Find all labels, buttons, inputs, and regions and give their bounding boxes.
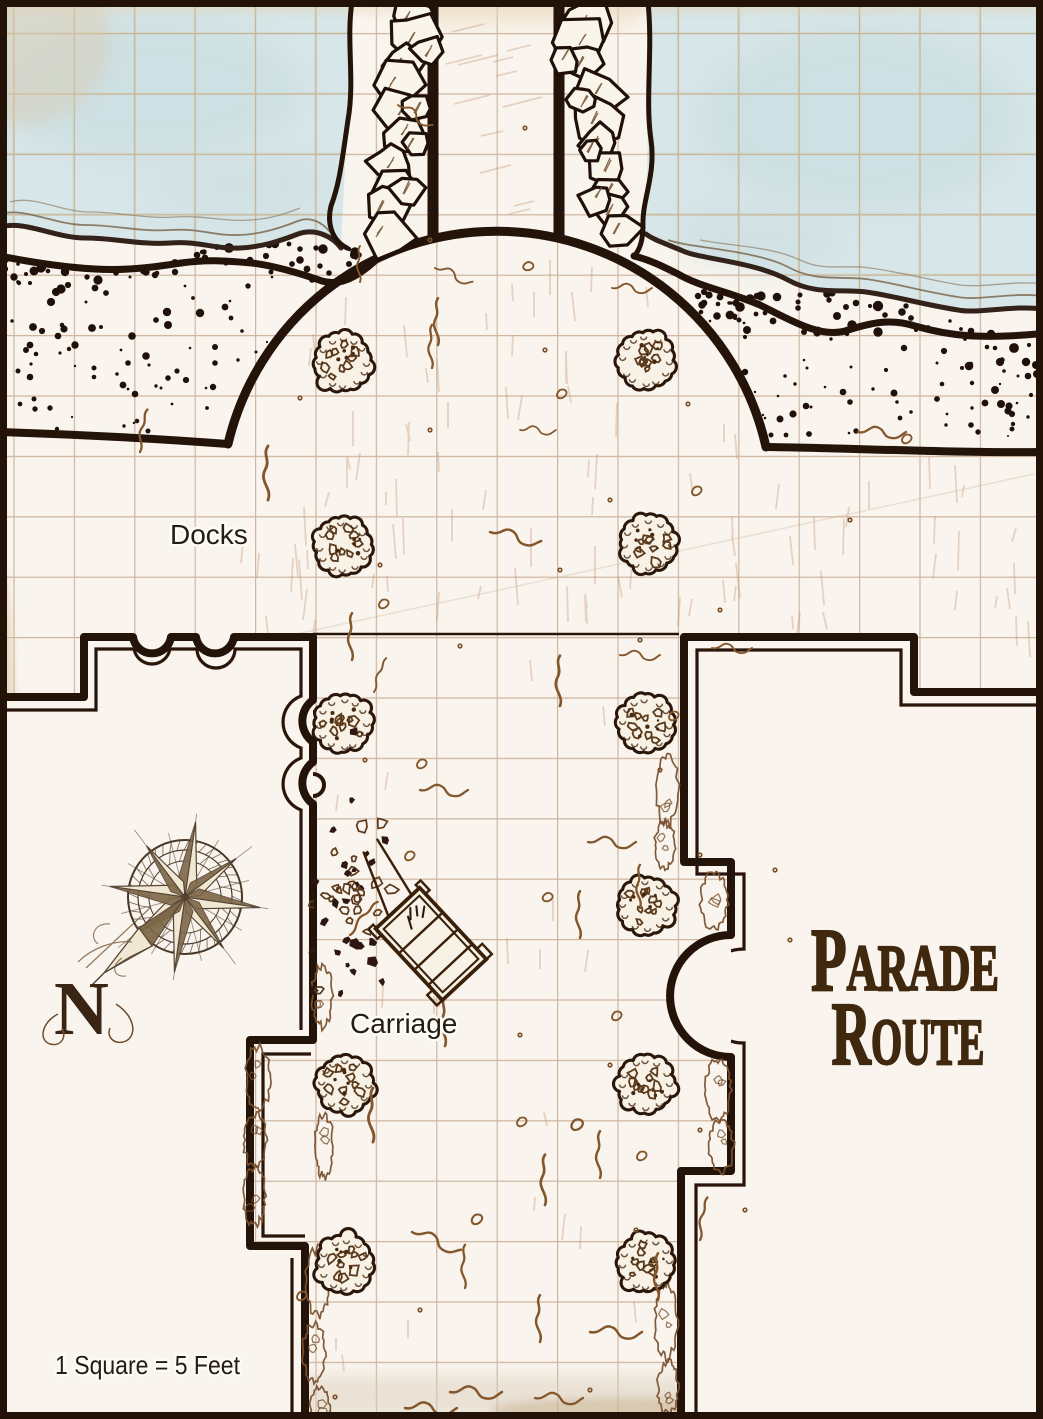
svg-text:N: N — [54, 967, 109, 1051]
svg-text:Carriage: Carriage — [350, 1008, 457, 1039]
svg-text:1 Square = 5 Feet: 1 Square = 5 Feet — [55, 1350, 241, 1380]
svg-text:Docks: Docks — [170, 519, 248, 550]
